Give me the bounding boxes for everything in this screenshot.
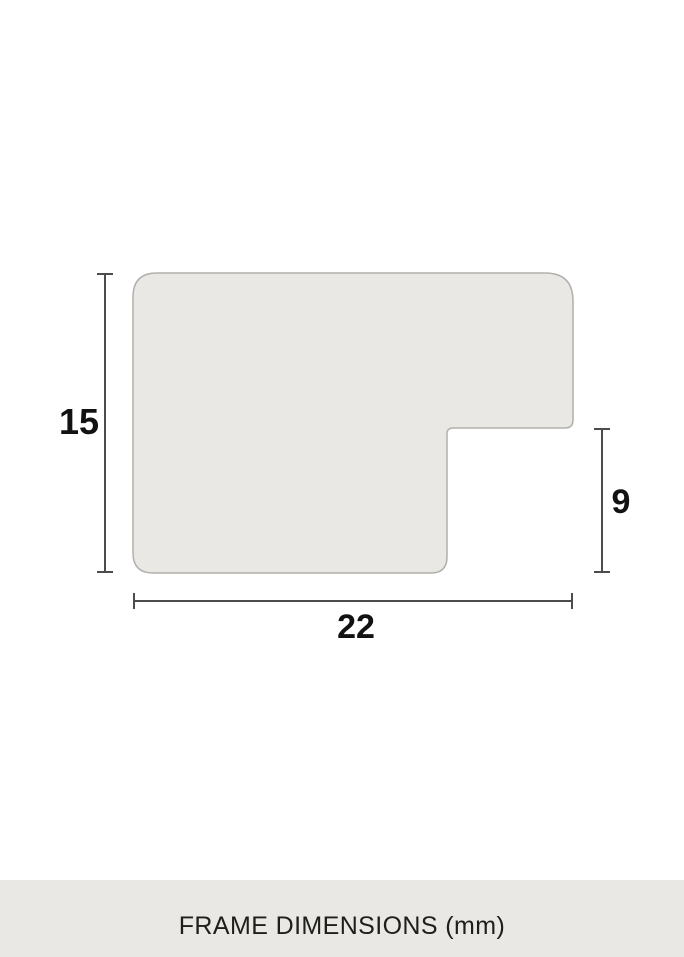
footer-caption: FRAME DIMENSIONS (mm) [179, 913, 505, 939]
width-dimension-label: 22 [337, 608, 375, 646]
height-dimension: 15 [59, 274, 113, 572]
height-dimension-label: 15 [59, 401, 99, 442]
rabbet-dimension: 9 [594, 429, 630, 572]
width-dimension: 22 [134, 593, 572, 646]
frame-profile-shape [133, 273, 573, 573]
footer-bar: FRAME DIMENSIONS (mm) [0, 880, 684, 957]
frame-dimension-diagram: 15 9 22 [0, 0, 684, 880]
rabbet-dimension-label: 9 [612, 483, 631, 521]
page: 15 9 22 FRAME DIMENSIONS (mm) [0, 0, 684, 957]
